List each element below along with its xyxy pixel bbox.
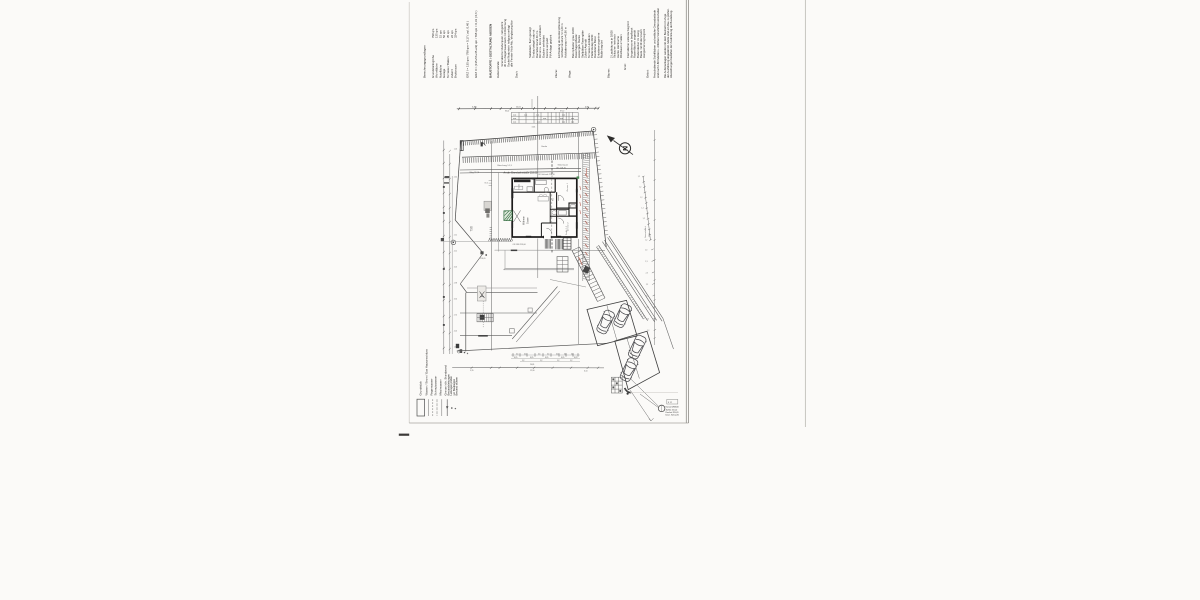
- svg-text:2,98: 2,98: [454, 282, 457, 284]
- svg-text:2,51: 2,51: [454, 234, 457, 236]
- svg-text:2,3: 2,3: [645, 261, 647, 263]
- svg-text:Schmutzwasser: Schmutzwasser: [434, 376, 438, 396]
- svg-text:2,3: 2,3: [647, 318, 649, 320]
- svg-text:3,25: 3,25: [514, 357, 517, 359]
- svg-text:OK FFB 219,00: OK FFB 219,00: [513, 244, 526, 246]
- svg-text:Holzlattenzaun h=0,90 m: Holzlattenzaun h=0,90 m: [563, 26, 567, 58]
- svg-text:Grundstück: Grundstück: [418, 381, 422, 396]
- svg-text:1,2: 1,2: [640, 197, 642, 199]
- svg-text:86,42: 86,42: [505, 111, 509, 113]
- svg-text:2,62: 2,62: [454, 176, 457, 178]
- svg-text:1,00: 1,00: [454, 148, 457, 150]
- svg-text:4,96: 4,96: [585, 106, 589, 108]
- svg-text:6,10: 6,10: [584, 370, 588, 372]
- svg-text:2,5: 2,5: [571, 353, 573, 355]
- svg-text:Wasser / Strom / Gas Hausansch: Wasser / Strom / Gas Hausanschluss: [425, 349, 429, 396]
- svg-text:Grün:: Grün:: [623, 63, 627, 70]
- svg-text:Gebot:: Gebot:: [646, 69, 650, 78]
- svg-text:x.xx: x.xx: [537, 122, 540, 124]
- svg-text:Stellpl. 1-2: Stellpl. 1-2: [565, 226, 568, 235]
- svg-text:Zimmer 2: Zimmer 2: [568, 222, 570, 231]
- svg-text:Abweichungen bedürfen der Zust: Abweichungen bedürfen der Zustimmung der…: [669, 10, 673, 78]
- svg-text:Freizuhaltende Sichtflächen un: Freizuhaltende Sichtflächen und seitlich…: [652, 10, 656, 78]
- svg-text:x.xx: x.xx: [513, 115, 516, 117]
- svg-text:2,3: 2,3: [646, 295, 648, 297]
- svg-text:GRZ I = 135 qm / 798 qm = 0,17: GRZ I = 135 qm / 798 qm = 0,17 ( zul. 0,…: [465, 21, 469, 78]
- svg-text:3,25: 3,25: [561, 357, 564, 359]
- svg-text:2,3: 2,3: [647, 330, 649, 332]
- svg-text:Nr.5: Nr.5: [485, 183, 488, 185]
- svg-text:12,01: 12,01: [516, 106, 521, 108]
- svg-text:2,3: 2,3: [645, 249, 647, 251]
- svg-text:3,25: 3,25: [545, 357, 548, 359]
- svg-text:2,5: 2,5: [556, 353, 558, 355]
- svg-text:2,3: 2,3: [647, 307, 649, 309]
- svg-text:1,2: 1,2: [570, 360, 572, 362]
- svg-text:N: N: [623, 146, 630, 151]
- svg-text:Obstbaum erhalten: Obstbaum erhalten: [619, 34, 623, 58]
- svg-text:2,3: 2,3: [646, 272, 648, 274]
- svg-text:2,5: 2,5: [547, 353, 549, 355]
- svg-text:Grenzabstand: Grenzabstand: [644, 226, 647, 238]
- svg-text:Essen: Essen: [527, 217, 530, 224]
- svg-text:Hangsicherung begrünt: Hangsicherung begrünt: [642, 29, 646, 58]
- svg-text:GRZ II = (135+56+35+22) qm / 7: GRZ II = (135+56+35+22) qm / 798 qm = 0,…: [474, 11, 478, 78]
- svg-text:1,2: 1,2: [540, 360, 542, 362]
- svg-text:1,2: 1,2: [638, 176, 640, 178]
- svg-text:1,2: 1,2: [639, 187, 641, 189]
- svg-text:Zäune:: Zäune:: [554, 69, 558, 78]
- svg-text:PV-Anlage geplant: PV-Anlage geplant: [548, 35, 552, 58]
- svg-text:4,12: 4,12: [454, 250, 457, 252]
- svg-text:Bruttoraum: Bruttoraum: [454, 63, 458, 78]
- svg-text:4,20: 4,20: [454, 330, 457, 332]
- svg-text:3,25: 3,25: [530, 357, 533, 359]
- svg-text:2,3: 2,3: [646, 284, 648, 286]
- svg-text:x.xx: x.xx: [571, 118, 574, 120]
- svg-text:218,05: 218,05: [480, 258, 486, 260]
- svg-text:Mischwasser: Mischwasser: [439, 379, 443, 395]
- svg-text:1,2: 1,2: [645, 239, 647, 241]
- svg-text:x.xx: x.xx: [562, 122, 565, 124]
- svg-text:2,74: 2,74: [454, 314, 457, 316]
- svg-text:x.xx: x.xx: [562, 115, 565, 117]
- svg-text:2,5: 2,5: [564, 353, 566, 355]
- svg-text:3,05: 3,05: [454, 266, 457, 268]
- svg-text:Stützmauer: Stützmauer: [558, 163, 569, 166]
- svg-text:Sohle 214,2: Sohle 214,2: [666, 409, 678, 411]
- svg-text:5,35: 5,35: [470, 370, 474, 372]
- svg-text:24,85: 24,85: [530, 364, 534, 366]
- svg-text:1,2: 1,2: [641, 208, 643, 210]
- svg-text:An der Eisenbahnstraße 218,60: An der Eisenbahnstraße 218,60: [504, 172, 538, 175]
- svg-text:2,5: 2,5: [516, 353, 518, 355]
- svg-text:Dach:: Dach:: [515, 70, 519, 78]
- svg-text:Kanal DN300: Kanal DN300: [666, 407, 680, 409]
- svg-text:x.xx: x.xx: [524, 115, 527, 117]
- svg-text:x.xx: x.xx: [571, 122, 574, 124]
- svg-text:alle Fenster Holz-Alu, Verglas: alle Fenster Holz-Alu, Verglasung klar: [510, 20, 514, 67]
- svg-text:1,2: 1,2: [557, 360, 559, 362]
- svg-text:Mulde begrünt: Mulde begrünt: [600, 40, 604, 58]
- svg-text:x.xx: x.xx: [513, 118, 516, 120]
- svg-text:Hecke: Hecke: [542, 146, 549, 148]
- svg-text:3,25: 3,25: [574, 357, 577, 359]
- svg-text:1:25: 1:25: [532, 127, 536, 129]
- svg-text:Wohnen: Wohnen: [523, 215, 526, 225]
- svg-text:324 qm: 324 qm: [454, 28, 458, 38]
- svg-text:2,5: 2,5: [538, 353, 540, 355]
- svg-text:Böschung 1:1,5: Böschung 1:1,5: [498, 165, 513, 167]
- svg-text:2,5: 2,5: [524, 353, 526, 355]
- svg-text:Deckel 216,9: Deckel 216,9: [666, 412, 680, 414]
- svg-text:1,2: 1,2: [522, 360, 524, 362]
- svg-text:Berechnungsgrundlagen: Berechnungsgrundlagen: [423, 45, 427, 78]
- svg-text:3,485: 3,485: [472, 106, 477, 108]
- svg-text:Wege:: Wege:: [568, 70, 572, 78]
- svg-text:1,2: 1,2: [644, 229, 646, 231]
- svg-text:1,2: 1,2: [643, 218, 645, 220]
- svg-text:x.xx: x.xx: [560, 118, 563, 120]
- svg-text:Bäume:: Bäume:: [606, 68, 610, 78]
- svg-text:3,50: 3,50: [454, 298, 457, 300]
- svg-text:796: 796: [470, 226, 474, 232]
- svg-text:Zimmer 1: Zimmer 1: [567, 182, 569, 191]
- svg-text:Bestand sichern: Bestand sichern: [454, 376, 458, 395]
- svg-text:x.xx: x.xx: [513, 122, 516, 124]
- svg-text:12,96: 12,96: [530, 370, 535, 372]
- svg-text:x.xx: x.xx: [543, 118, 546, 120]
- svg-text:Weg 217,9: Weg 217,9: [470, 172, 481, 174]
- svg-text:BAUSTOFFE / GESTALTUNG AUSSEN: BAUSTOFFE / GESTALTUNG AUSSEN: [489, 24, 493, 78]
- svg-text:best. Schacht: best. Schacht: [666, 414, 680, 417]
- svg-text:sind nach LBO Maßen u. örtlich: sind nach LBO Maßen u. örtlichen Vorschr…: [656, 7, 660, 78]
